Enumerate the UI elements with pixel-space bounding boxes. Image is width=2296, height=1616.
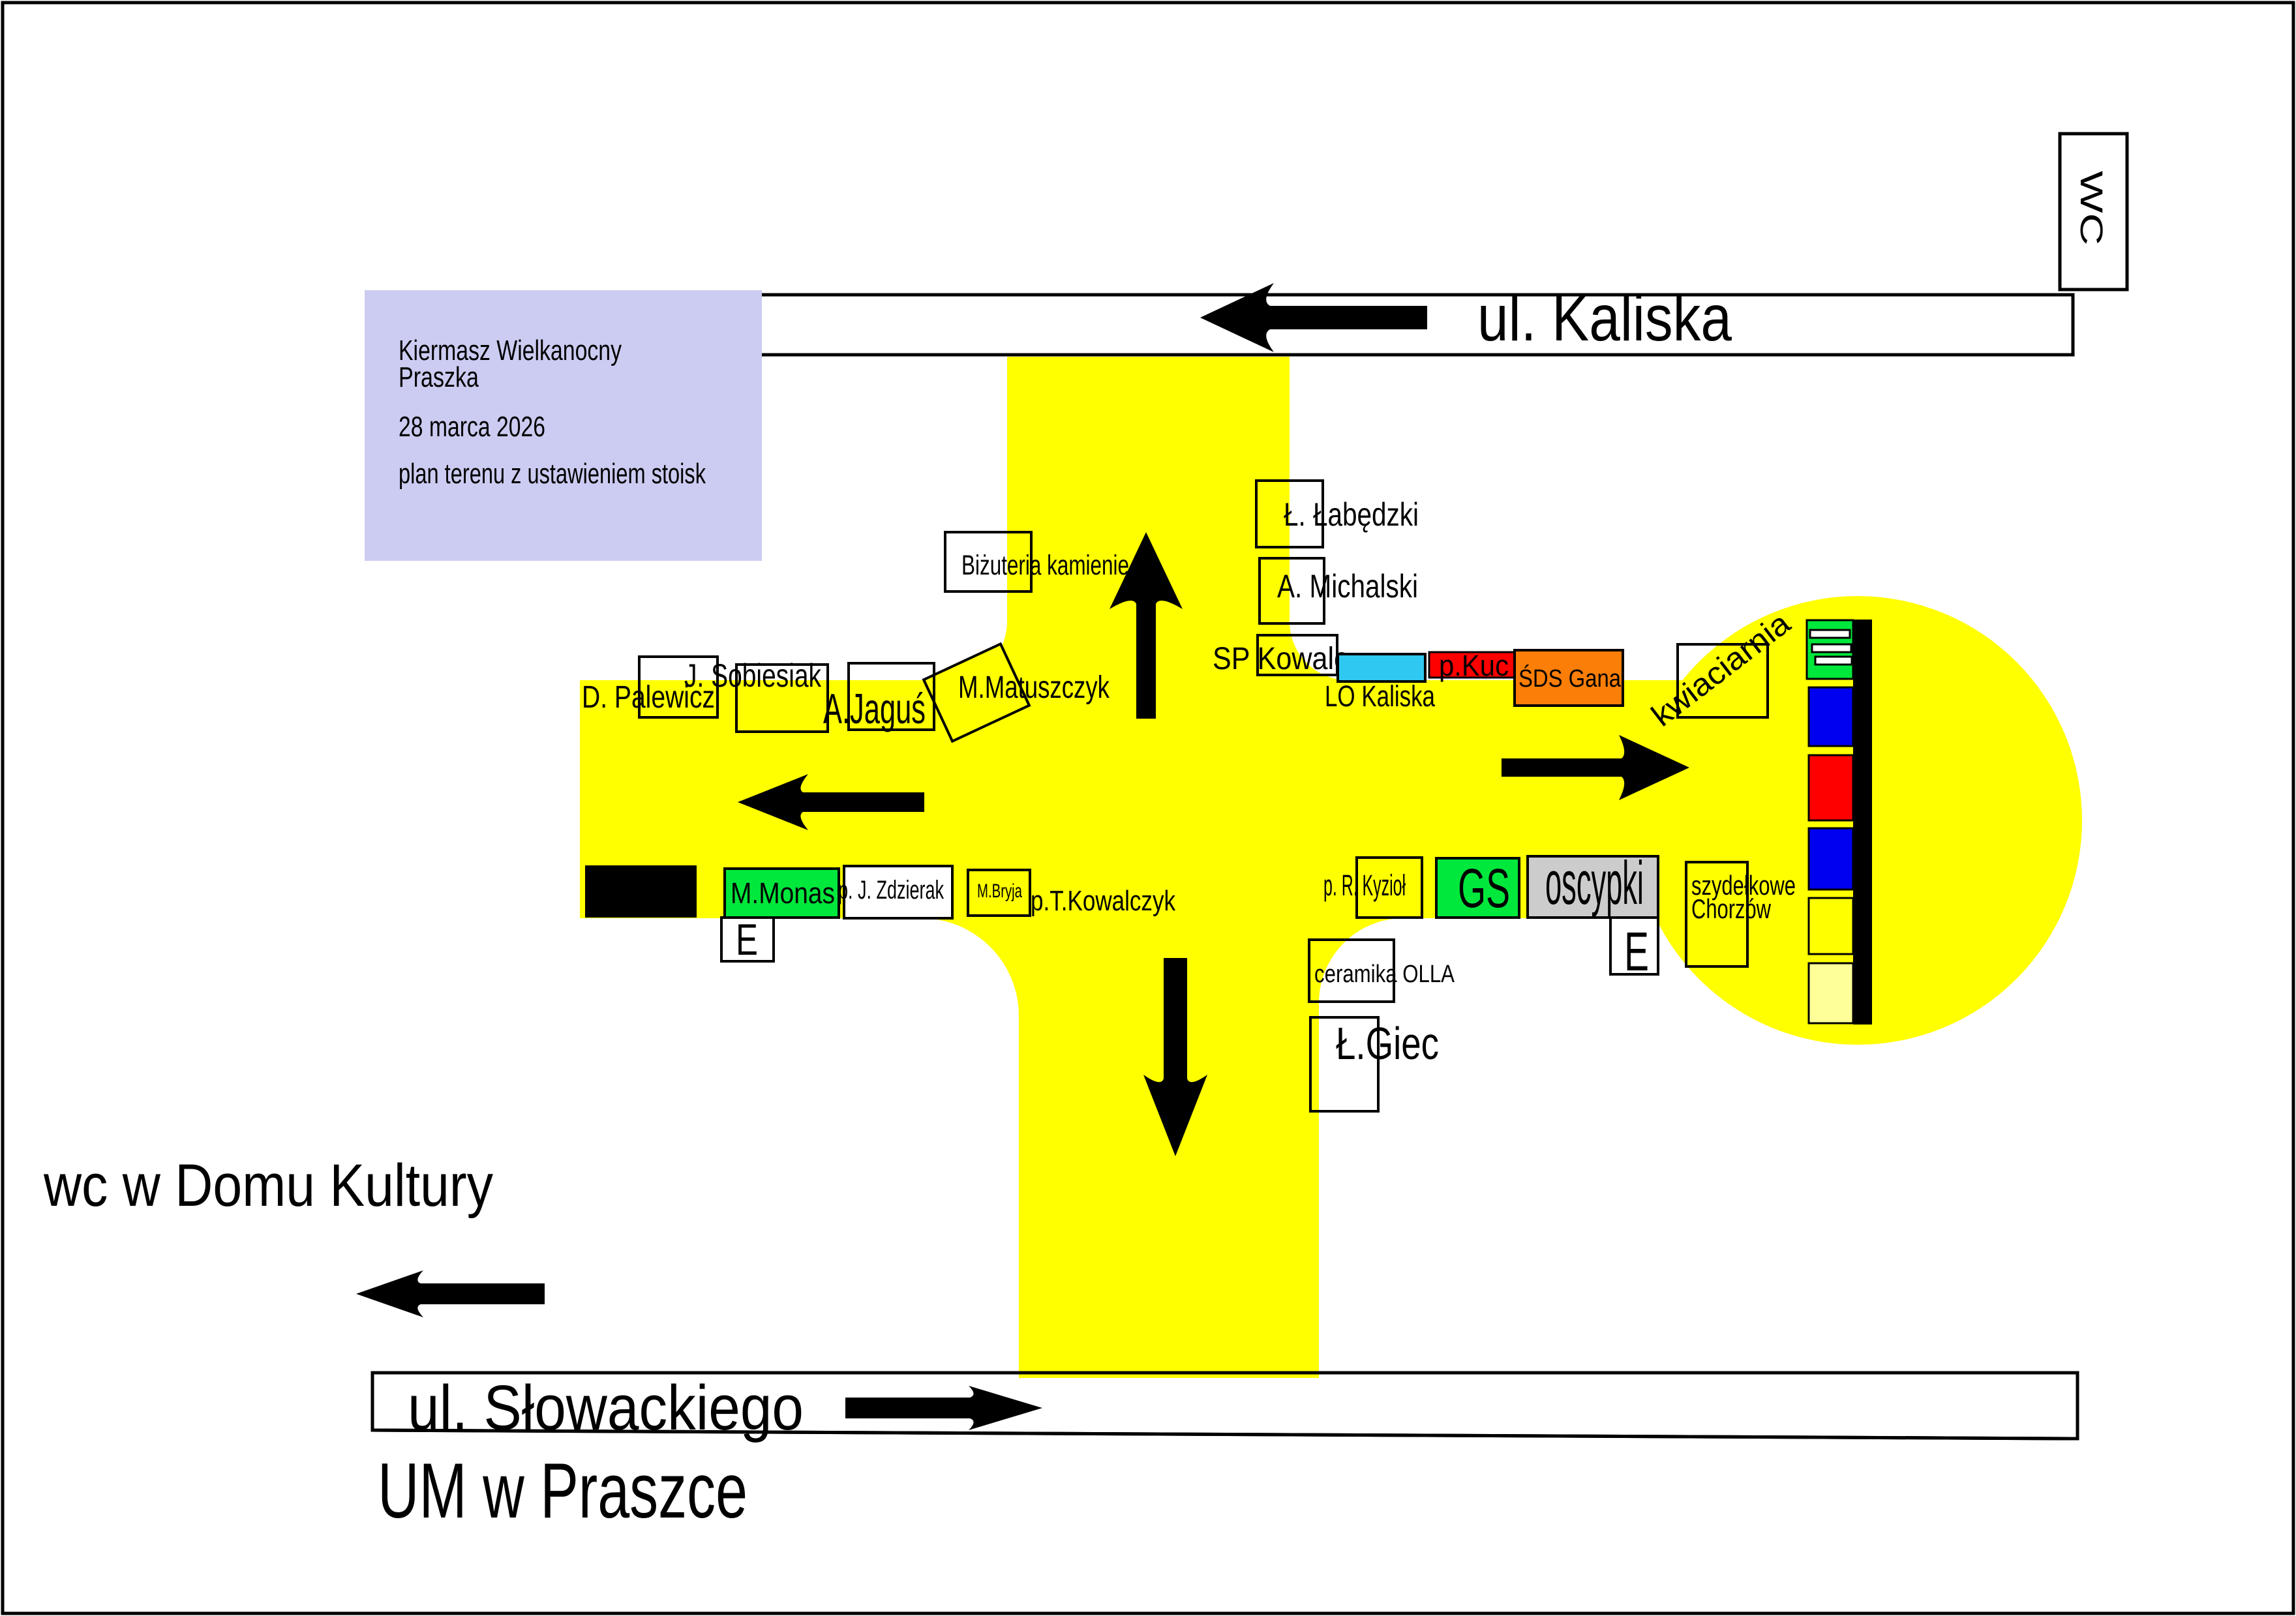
svg-text:M.Matuszczyk: M.Matuszczyk [958, 670, 1110, 705]
svg-text:p. J. Zdzierak: p. J. Zdzierak [838, 876, 944, 905]
svg-text:D. Palewicz: D. Palewicz [582, 680, 715, 715]
svg-text:wc w Domu Kultury: wc w Domu Kultury [43, 1152, 493, 1219]
svg-text:M.Monas: M.Monas [731, 876, 835, 910]
svg-text:28 marca 2026: 28 marca 2026 [399, 411, 545, 443]
svg-text:GS: GS [1458, 858, 1510, 919]
svg-text:E: E [736, 915, 758, 965]
svg-text:A.Jaguś: A.Jaguś [823, 685, 926, 732]
svg-text:plan terenu z ustawieniem stoi: plan terenu z ustawieniem stoisk [399, 458, 706, 490]
svg-text:Ł. Łabędzki: Ł. Łabędzki [1284, 496, 1419, 533]
svg-text:M.Bryja: M.Bryja [977, 880, 1022, 902]
svg-text:LO Kaliska: LO Kaliska [1325, 680, 1436, 713]
svg-text:Biżuteria kamienie: Biżuteria kamienie [961, 550, 1129, 581]
svg-text:ceramika OLLA: ceramika OLLA [1314, 961, 1455, 988]
svg-text:ul. Kaliska: ul. Kaliska [1477, 282, 1732, 355]
svg-text:E: E [1624, 921, 1649, 982]
svg-text:oscypki: oscypki [1545, 848, 1644, 917]
svg-text:p.T.Kowalczyk: p.T.Kowalczyk [1031, 885, 1176, 917]
svg-text:A. Michalski: A. Michalski [1277, 568, 1418, 605]
svg-text:ul. Słowackiego: ul. Słowackiego [408, 1372, 804, 1443]
svg-text:Chorzów: Chorzów [1691, 893, 1771, 924]
svg-text:Praszka: Praszka [399, 361, 479, 393]
svg-text:SP Kowale: SP Kowale [1213, 642, 1350, 676]
svg-text:p.Kuc: p.Kuc [1439, 649, 1509, 682]
svg-text:UM w Praszce: UM w Praszce [378, 1447, 748, 1534]
svg-text:p. R. Kyzioł: p. R. Kyzioł [1323, 869, 1406, 902]
svg-text:WC: WC [2074, 171, 2108, 245]
svg-text:ŚDS Gana: ŚDS Gana [1518, 663, 1622, 693]
svg-text:Ł.Giec: Ł.Giec [1336, 1018, 1439, 1069]
